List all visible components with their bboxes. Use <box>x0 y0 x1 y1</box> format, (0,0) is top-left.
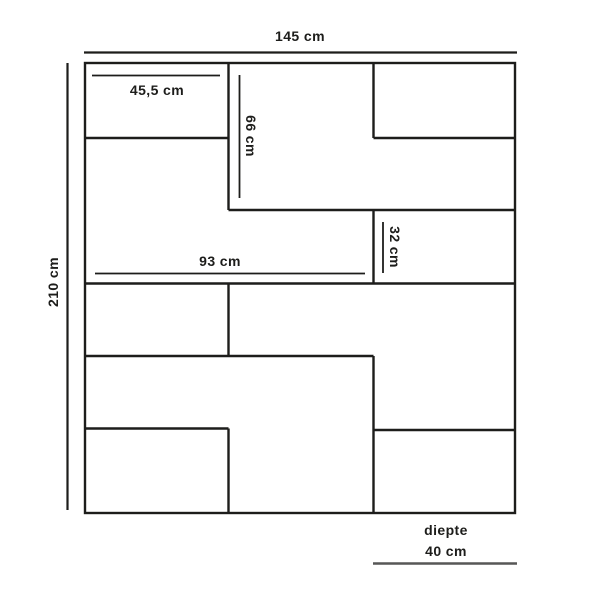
cabinet-outline <box>85 63 515 513</box>
cabinet-line-drawing <box>0 0 600 600</box>
middle-compartment-height-label: 66 cm <box>244 115 258 157</box>
cabinet-dimension-diagram: 145 cm 210 cm 45,5 cm 66 cm 93 cm 32 cm … <box>0 0 600 600</box>
top-left-shelf-width-label: 45,5 cm <box>130 83 184 97</box>
total-height-label: 210 cm <box>46 257 60 307</box>
depth-caption-label: diepte <box>424 523 468 537</box>
middle-shelf-width-label: 93 cm <box>199 254 241 268</box>
depth-value-label: 40 cm <box>425 544 467 558</box>
right-shelf-height-label: 32 cm <box>388 226 402 268</box>
total-width-label: 145 cm <box>275 29 325 43</box>
